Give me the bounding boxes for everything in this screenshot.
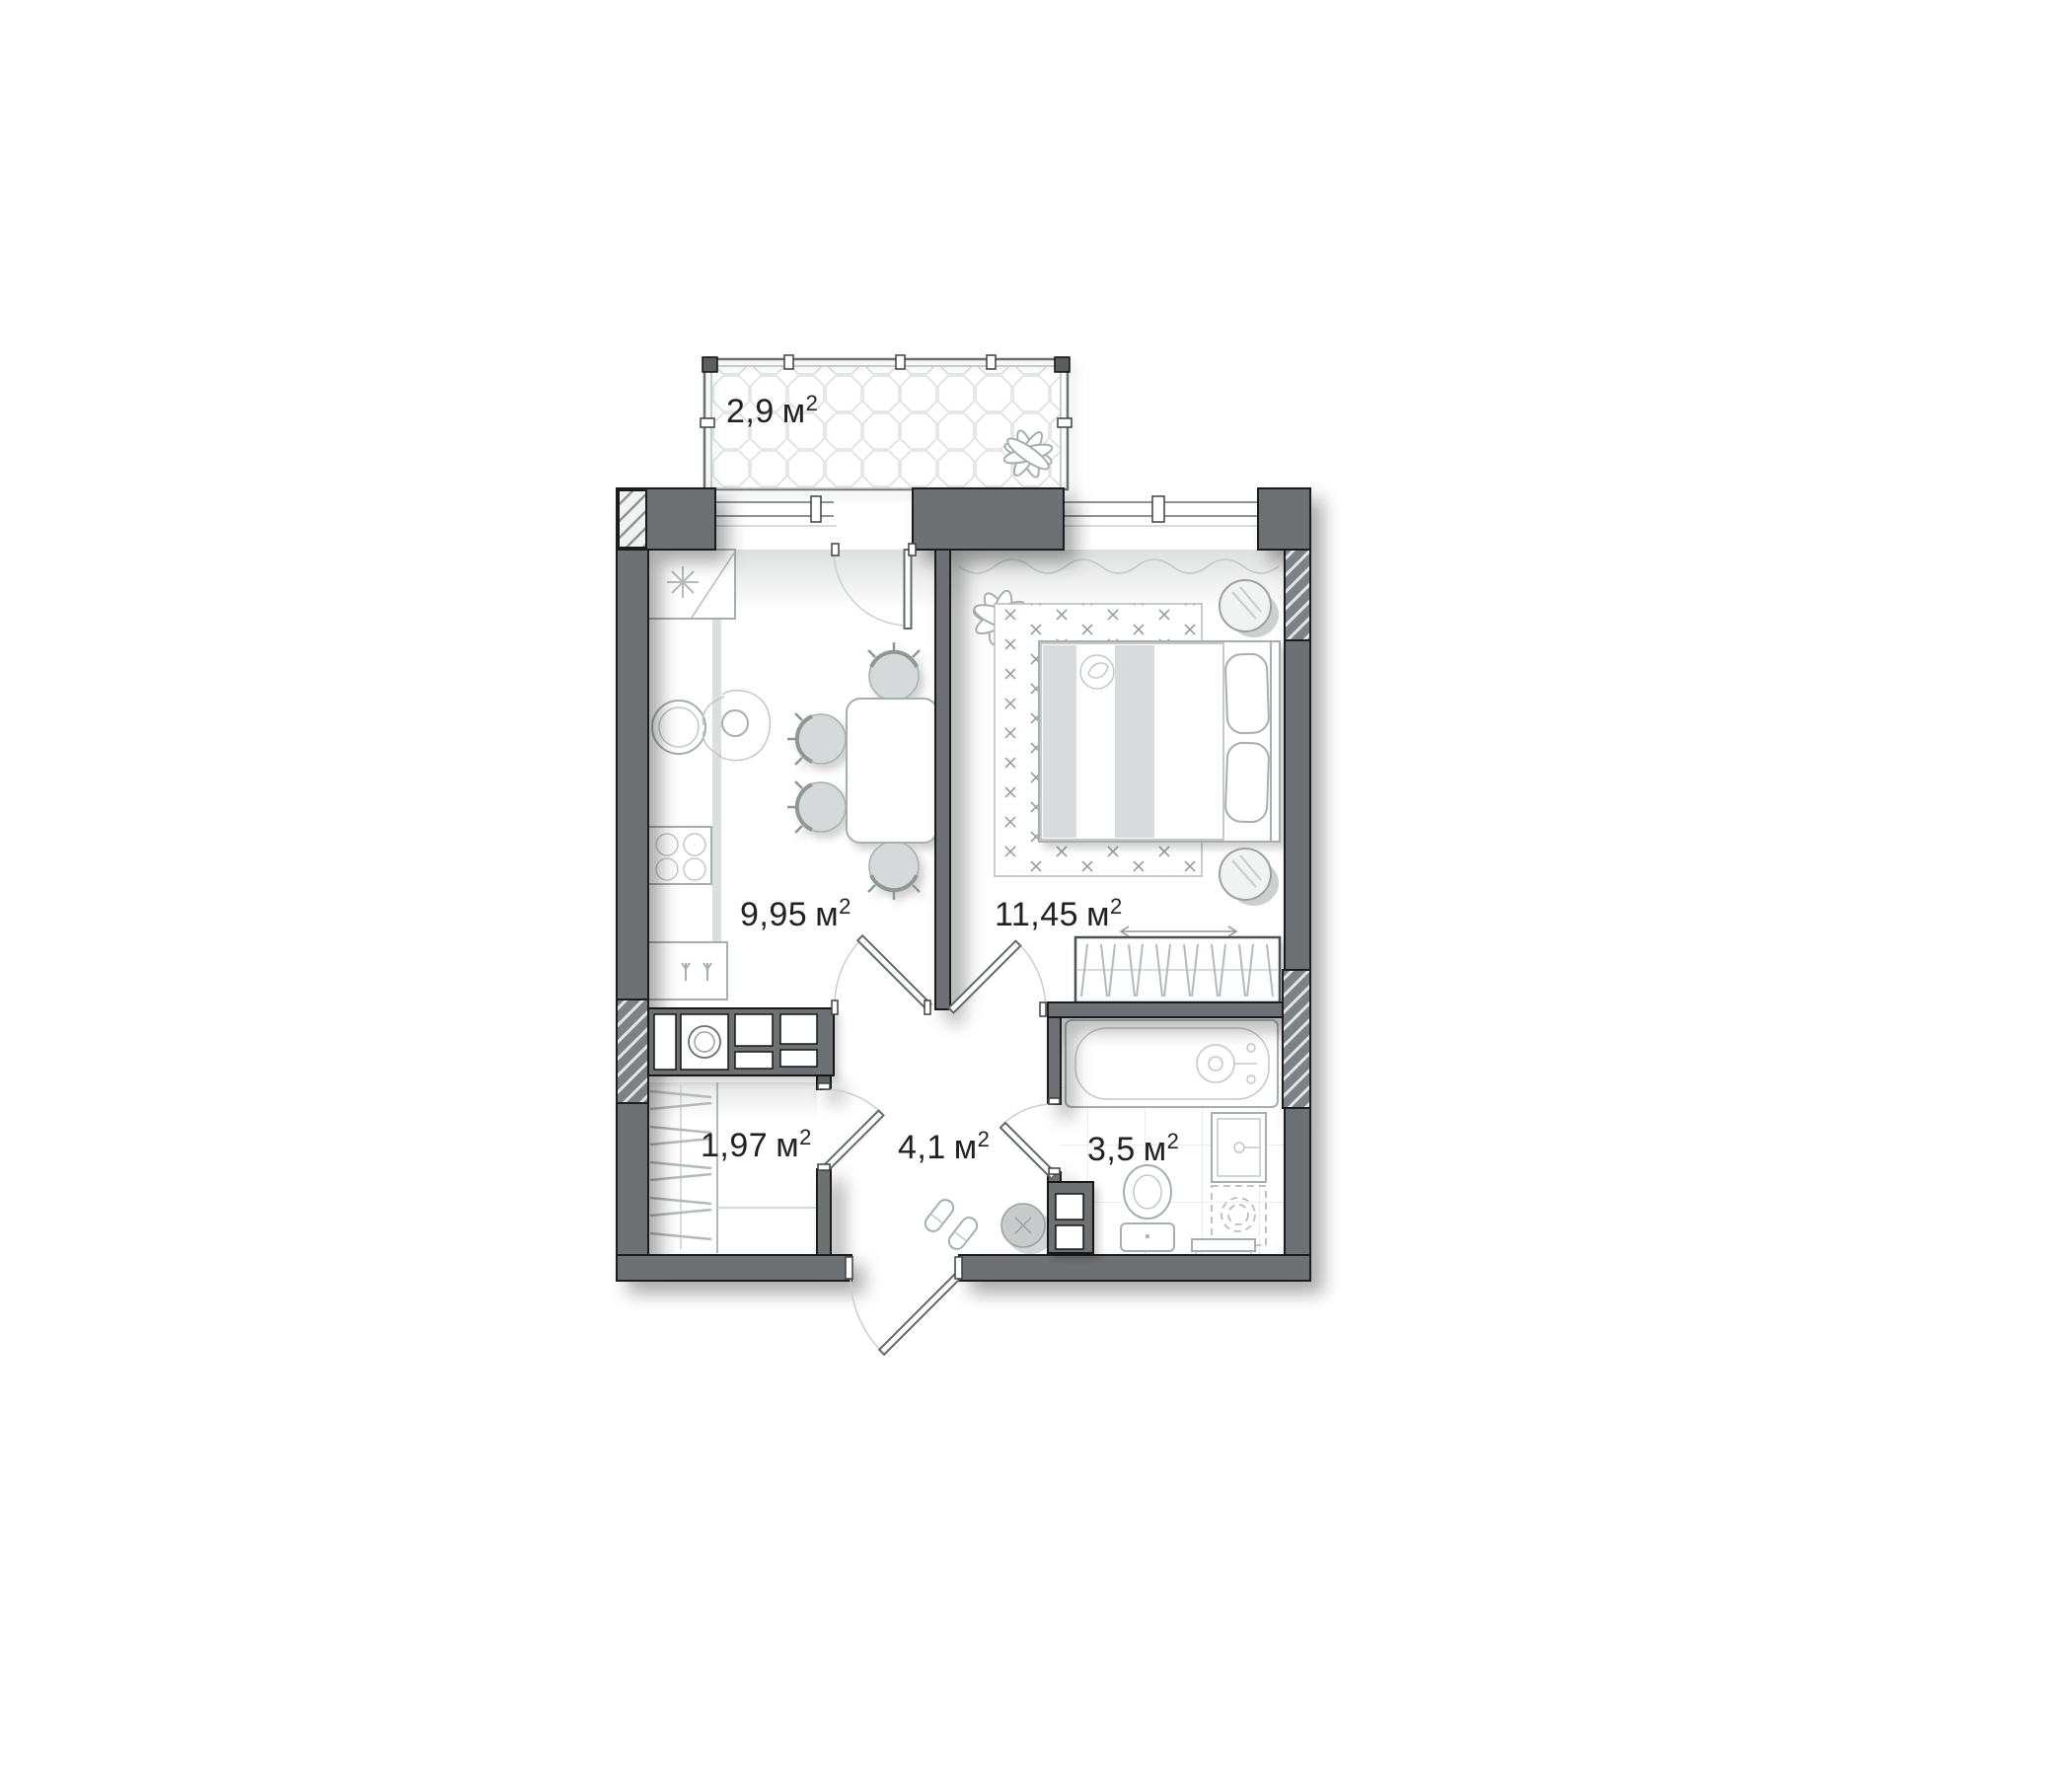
slide-arrow — [1121, 926, 1236, 936]
nightstand — [1220, 849, 1279, 906]
pillow — [1225, 742, 1270, 822]
pouf — [1001, 1204, 1054, 1254]
slippers-icon — [923, 1197, 981, 1252]
hallway-furniture — [923, 1197, 1054, 1254]
headboard — [1271, 641, 1280, 842]
area-label-storage: 1,97м2 — [701, 1125, 812, 1164]
area-label-bedroom: 11,45м2 — [995, 894, 1123, 933]
bed — [1039, 641, 1280, 842]
kitchen-door — [832, 935, 930, 1014]
bathroom-left-wall — [1048, 1017, 1061, 1104]
chair — [868, 642, 920, 701]
chair — [868, 842, 920, 900]
balcony-mullion-1 — [784, 355, 793, 369]
entrance-door — [846, 1257, 962, 1355]
balcony-mullion-right — [1058, 418, 1072, 427]
left-wall — [617, 488, 648, 1281]
apartment-floor-plan: 2,9м2 9,95м2 11,45м2 1,97м2 4,1м2 3,5м2 — [0, 0, 2072, 1776]
column-hatch-topright — [1285, 550, 1310, 640]
kitchen-millwork — [648, 1008, 834, 1075]
bottom-wall-left — [617, 1255, 851, 1281]
right-wall — [1285, 550, 1310, 1281]
balcony-mullion-left — [701, 418, 714, 427]
area-label-bathroom: 3,5м2 — [1087, 1129, 1179, 1168]
balcony-mullion-3 — [987, 355, 996, 369]
chair — [787, 713, 846, 765]
top-wall-right — [1258, 488, 1310, 550]
bathtub — [1066, 1020, 1278, 1107]
kitchen-counter-edge — [712, 612, 721, 947]
balcony-post-right — [1055, 357, 1070, 372]
bathroom-vanity — [1048, 1182, 1093, 1253]
blanket-stripe — [1043, 645, 1076, 838]
kitchen-window — [712, 496, 837, 526]
dining-table — [847, 699, 937, 843]
top-wall-pillar — [913, 488, 1064, 550]
pillow — [1225, 653, 1270, 733]
area-label-hallway: 4,1м2 — [898, 1127, 990, 1166]
kitchen-bedroom-wall — [935, 550, 950, 1009]
column-hatch-topleft — [619, 490, 646, 548]
kitchen-upper-cabinet — [648, 550, 735, 619]
balcony-mullion-2 — [896, 355, 905, 369]
bottom-wall-right — [959, 1255, 1310, 1281]
area-label-balcony: 2,9м2 — [726, 391, 818, 430]
wardrobe — [1075, 937, 1280, 1002]
sink-cabinet — [648, 942, 727, 999]
storage-door — [818, 1083, 883, 1172]
dining-set — [787, 642, 937, 900]
area-label-kitchen: 9,95м2 — [740, 894, 851, 933]
blanket-stripe — [1115, 645, 1154, 838]
column-hatch-right — [1283, 970, 1310, 1108]
toilet — [1121, 1165, 1174, 1251]
stove — [648, 827, 711, 884]
shower-door — [1212, 1113, 1266, 1182]
bathroom-top-wall — [1048, 1002, 1285, 1017]
bedroom-furniture — [959, 559, 1280, 1002]
chair — [787, 781, 846, 833]
storage-right-wall — [817, 1169, 831, 1255]
bathroom-door — [1000, 1098, 1060, 1178]
balcony-post-left — [703, 357, 717, 372]
floor-plan-canvas: 2,9м2 9,95м2 11,45м2 1,97м2 4,1м2 3,5м2 — [0, 0, 2072, 1776]
column-hatch-left — [617, 999, 648, 1103]
bedroom-window — [1060, 496, 1263, 526]
